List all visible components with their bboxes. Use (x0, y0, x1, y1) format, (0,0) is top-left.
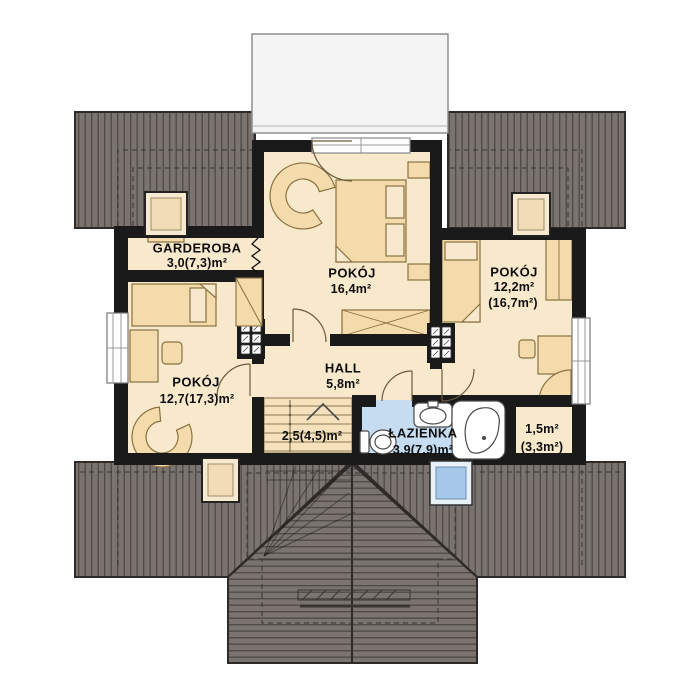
floor-plan-drawing (0, 0, 700, 700)
pillow-left-room (190, 288, 206, 322)
chair-right-room (519, 340, 535, 358)
toilet (360, 430, 396, 454)
chimney-2 (427, 323, 455, 363)
wall-center-bottom-b (330, 334, 442, 346)
chair-left-room (162, 342, 182, 364)
skylight-top-right (512, 193, 550, 236)
desk-right-room (538, 336, 572, 374)
window-right (572, 318, 590, 404)
pillow-center-1 (386, 186, 404, 218)
staircase (264, 398, 352, 453)
wall-top-center-a (252, 140, 312, 152)
wall-bathroom-left (352, 395, 362, 465)
desk-left-room (130, 330, 158, 382)
balcony-door (312, 138, 410, 153)
skylight-top-left (145, 192, 187, 236)
nightstand-bottom (408, 264, 430, 280)
skylight-bathroom-blue (430, 461, 472, 505)
balcony (252, 34, 448, 133)
window-left (107, 313, 128, 383)
skylight-bottom-left (202, 458, 239, 502)
floor-garderoba (122, 232, 258, 276)
sink (414, 401, 452, 427)
wall-right-room-top (430, 228, 586, 240)
wall-storage-left (504, 395, 516, 465)
built-in-closet (236, 278, 262, 326)
wall-center-left-upper (252, 140, 264, 238)
floor-plan: GARDEROBA 3,0(7,3)m² POKÓJ 16,4m² POKÓJ … (0, 0, 700, 700)
pillow-right-room (445, 242, 477, 260)
corner-bathtub (452, 401, 505, 459)
nightstand-top (408, 162, 430, 178)
bathtub-drain (482, 436, 486, 440)
pillow-center-2 (386, 224, 404, 256)
